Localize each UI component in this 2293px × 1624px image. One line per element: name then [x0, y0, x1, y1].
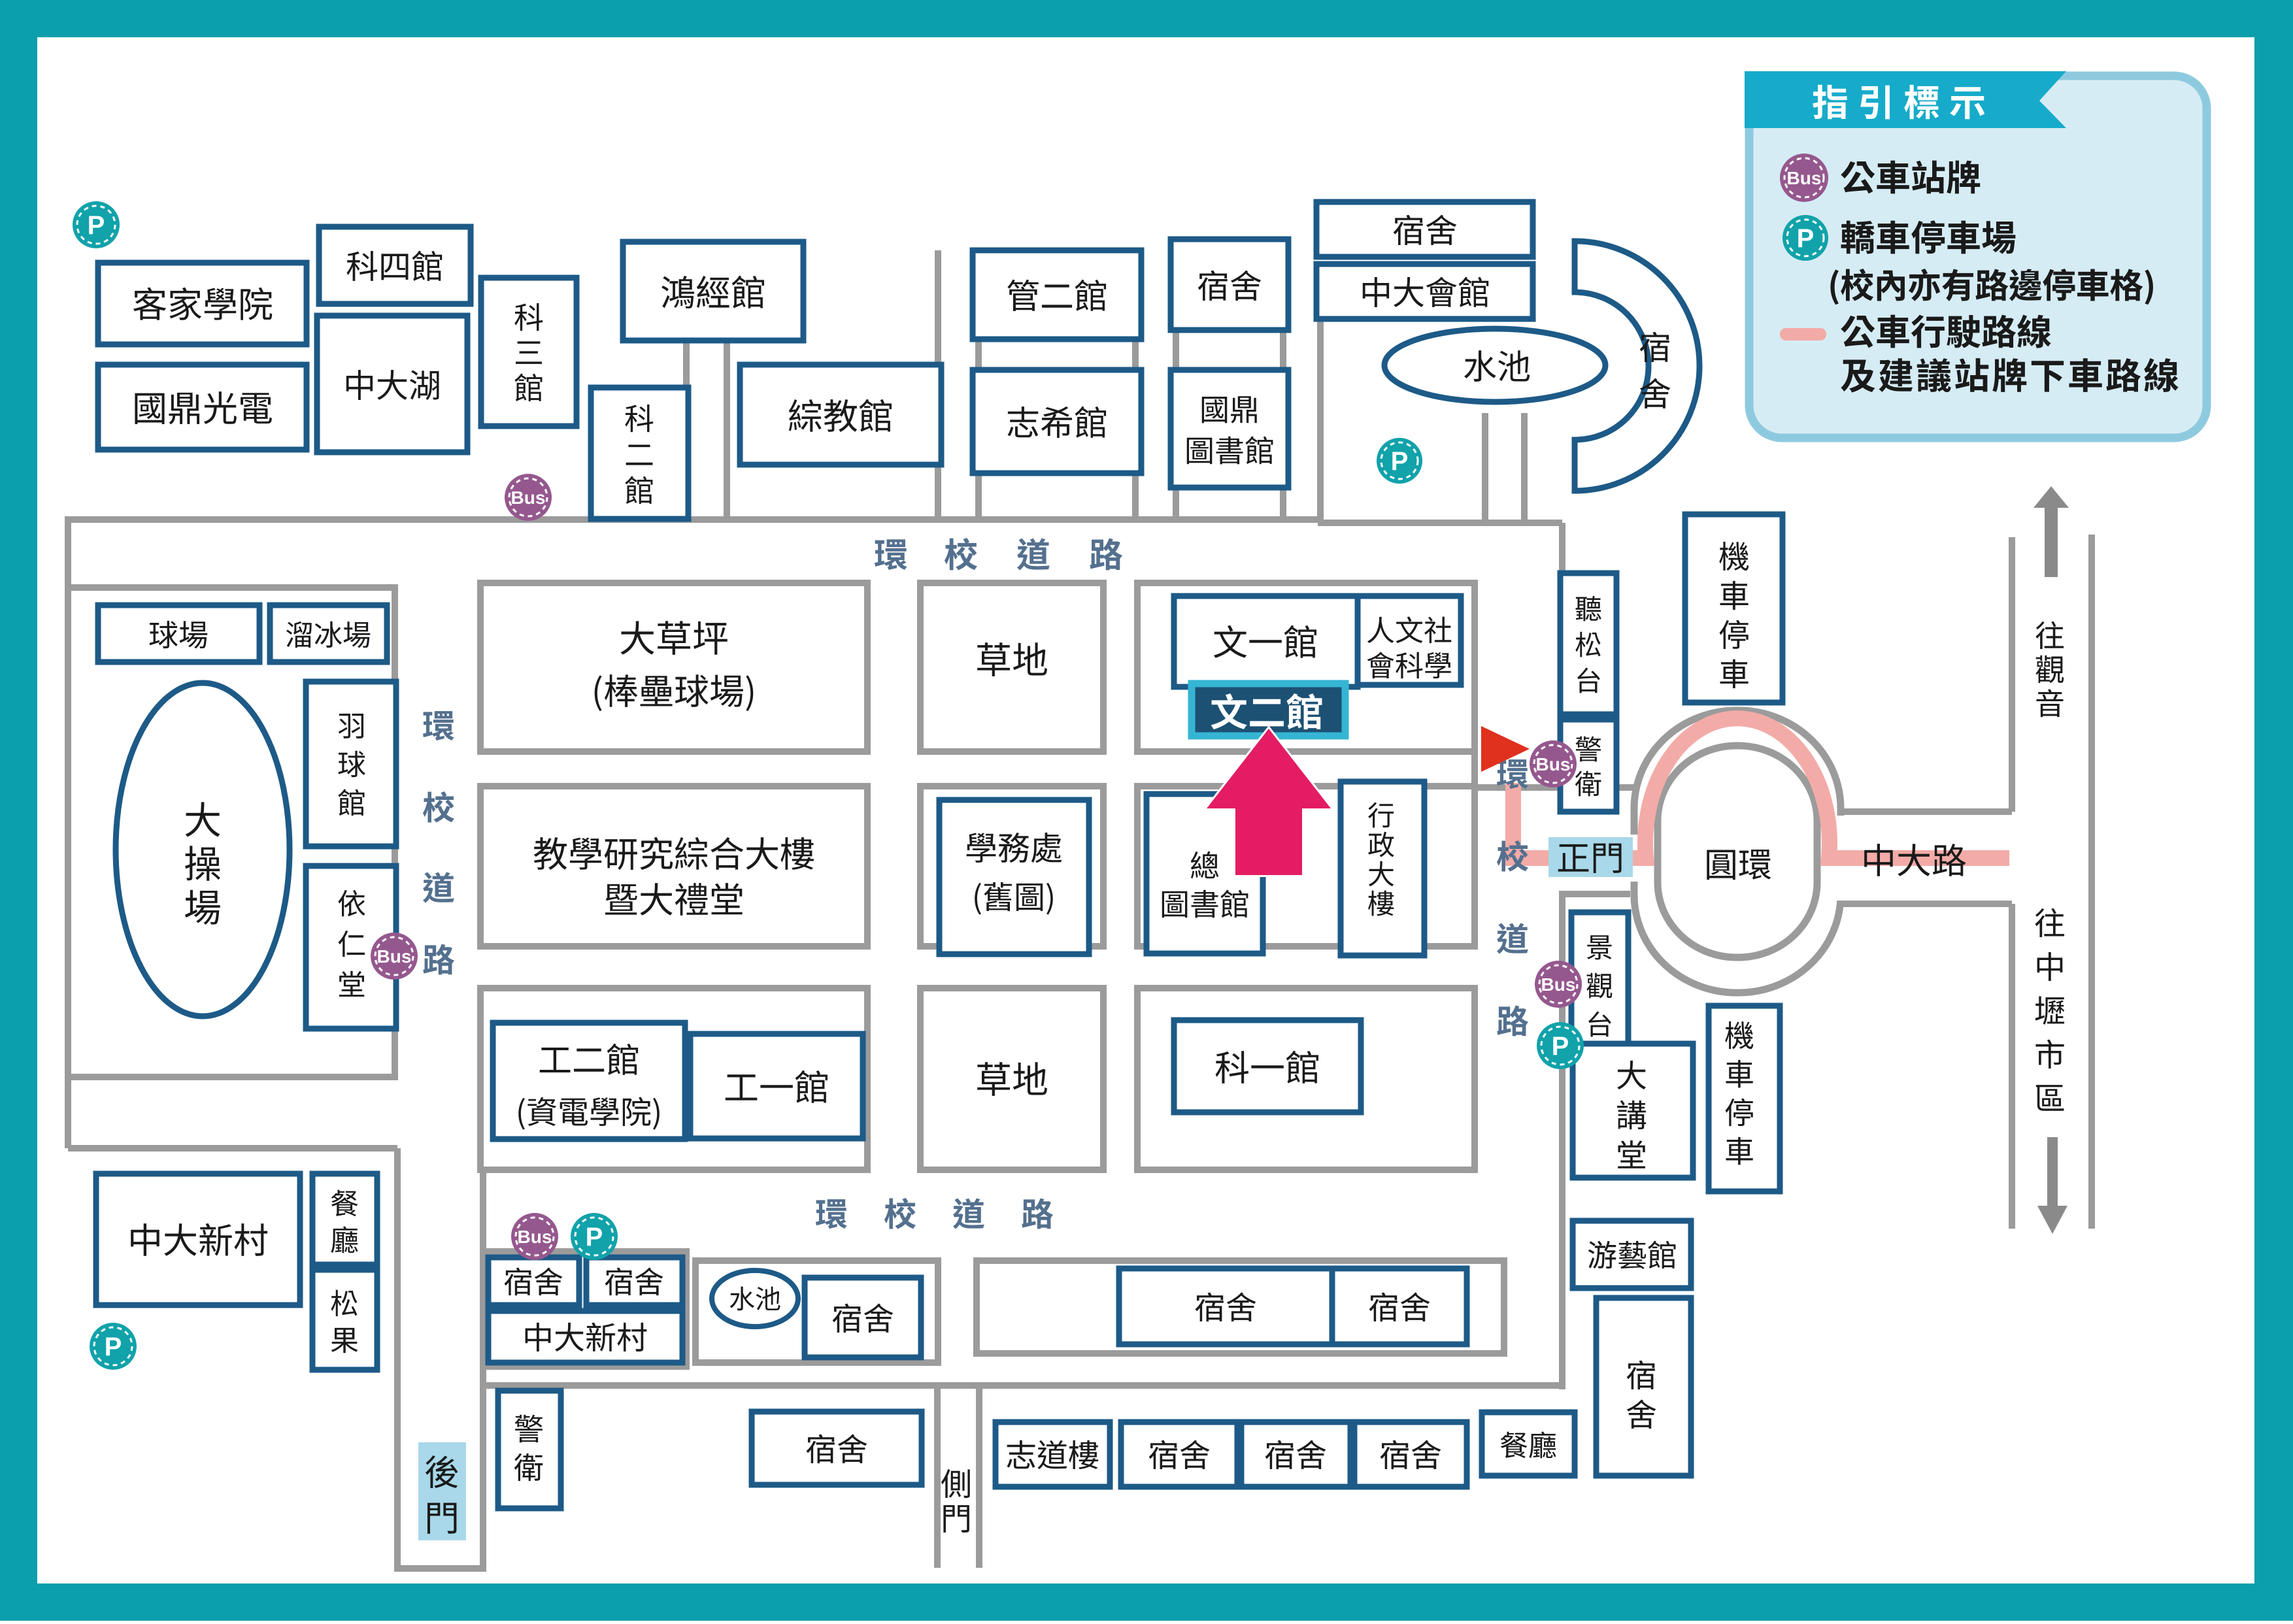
svg-text:P: P	[586, 1223, 603, 1251]
svg-text:Bus: Bus	[511, 488, 546, 508]
svg-text:P: P	[105, 1333, 122, 1361]
svg-text:P: P	[88, 211, 105, 240]
svg-text:Bus: Bus	[1787, 168, 1822, 188]
svg-text:Bus: Bus	[1541, 974, 1576, 995]
svg-text:Bus: Bus	[518, 1227, 552, 1247]
svg-text:P: P	[1391, 447, 1409, 476]
svg-text:P: P	[1552, 1032, 1569, 1061]
svg-text:Bus: Bus	[377, 946, 412, 967]
svg-text:P: P	[1797, 224, 1815, 253]
svg-text:Bus: Bus	[1536, 754, 1571, 774]
